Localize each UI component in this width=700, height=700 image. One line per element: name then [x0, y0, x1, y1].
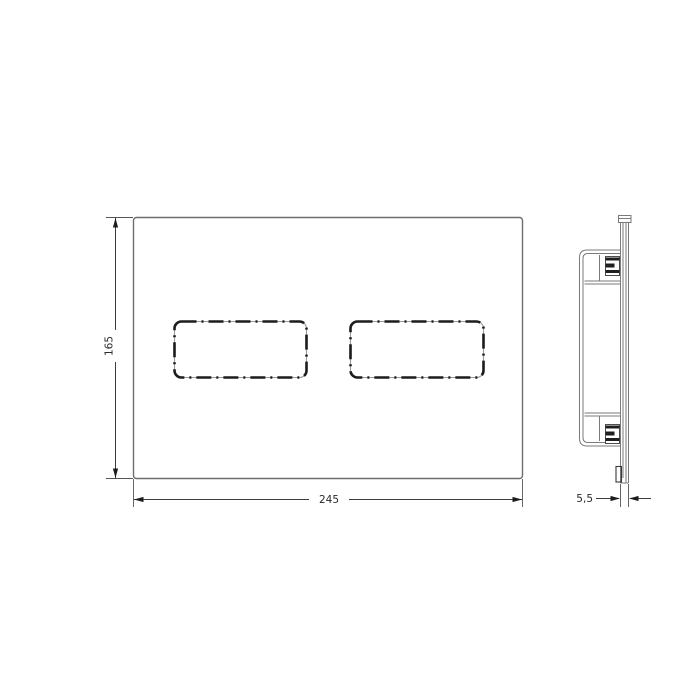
- flush-button-left-dash-line: [175, 322, 307, 378]
- flush-button-right-dash-line: [351, 322, 484, 378]
- height-arrow-up-icon: [113, 218, 118, 228]
- flush-button-left: [175, 322, 307, 378]
- flush-button-left-base-line: [175, 322, 307, 378]
- width-arrow-left-icon: [134, 497, 144, 502]
- width-dimension-label: 245: [319, 494, 339, 506]
- mounting-frame-inner-line: [583, 254, 620, 443]
- technical-drawing-canvas: 165 245: [0, 0, 700, 700]
- technical-drawing-sheet: 165 245: [0, 0, 700, 700]
- thickness-arrow-left-icon: [629, 496, 639, 501]
- thickness-arrow-right-icon: [611, 496, 621, 501]
- dimension-height: 165: [104, 218, 134, 479]
- height-arrow-down-icon: [113, 469, 118, 479]
- thickness-dimension-label: 5,5: [576, 493, 593, 505]
- flush-button-right: [351, 322, 484, 378]
- plate-outline: [134, 218, 523, 479]
- side-view: [580, 216, 632, 484]
- width-arrow-right-icon: [513, 497, 523, 502]
- flush-button-right-base-line: [351, 322, 484, 378]
- dimension-thickness: 5,5: [576, 484, 651, 507]
- clip-bottom: [606, 425, 620, 444]
- dimension-width: 245: [134, 479, 523, 507]
- height-dimension-label: 165: [104, 336, 116, 356]
- front-view: [134, 218, 523, 479]
- clip-top: [606, 257, 620, 276]
